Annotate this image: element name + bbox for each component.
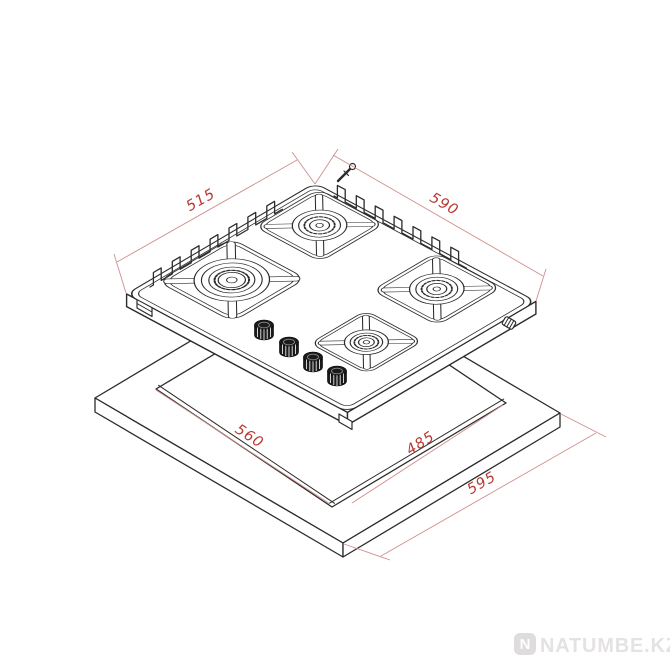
watermark-text: NATUMBE.KZ [540,635,670,657]
extension-line [292,152,315,184]
control-knob [280,337,299,357]
technical-drawing: 515 590 560 485 595 N NATUMBE.KZ [0,0,670,670]
watermark-logo-letter: N [520,636,531,653]
extension-line [536,269,546,301]
watermark-logo: N [514,633,536,655]
product-image-canvas: 515 590 560 485 595 N NATUMBE.KZ [0,0,670,670]
extension-line [315,149,338,184]
dimension-label-hob-width: 590 [427,190,462,219]
extension-line [561,414,606,437]
control-knob [255,320,274,340]
watermark: N NATUMBE.KZ [514,633,670,657]
control-knob [328,366,347,386]
control-knob [304,352,323,372]
dimension-label-hob-depth: 515 [184,186,219,215]
